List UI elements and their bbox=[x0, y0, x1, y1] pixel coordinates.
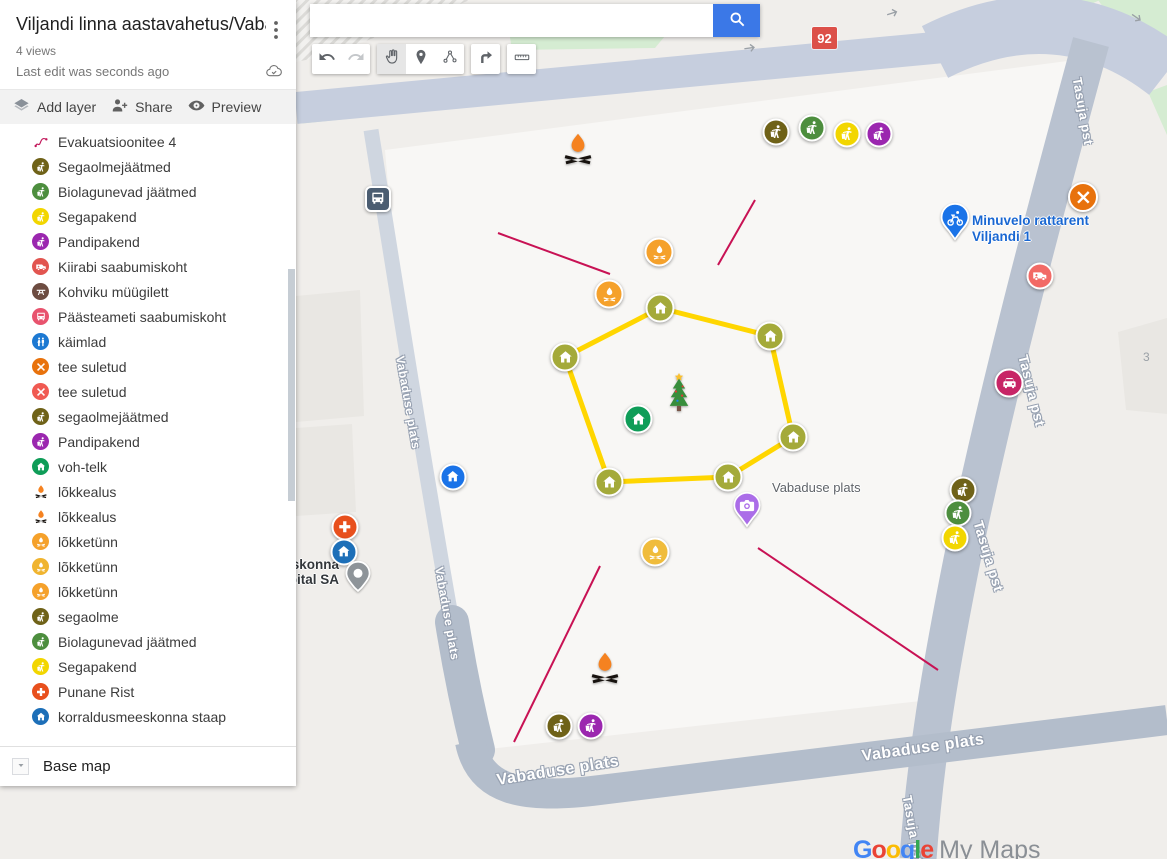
litter-icon bbox=[580, 715, 603, 738]
waste-mixed-marker-1[interactable] bbox=[763, 119, 790, 146]
litter-icon bbox=[32, 208, 49, 225]
waste-packaging-marker-2[interactable] bbox=[942, 525, 969, 552]
layer-item-20[interactable]: Biolagunevad jäätmed bbox=[0, 629, 296, 654]
layer-item-19[interactable]: segaolme bbox=[0, 604, 296, 629]
directions-icon bbox=[477, 48, 495, 71]
evacuation-route-line-3[interactable] bbox=[758, 548, 938, 670]
pan-tool-button[interactable] bbox=[377, 44, 406, 74]
measure-tool-button[interactable] bbox=[507, 44, 536, 74]
search-bar bbox=[310, 4, 760, 37]
chevron-down-icon bbox=[15, 758, 27, 776]
layer-item-label: lõkketünn bbox=[58, 559, 118, 575]
litter-icon bbox=[801, 117, 824, 140]
undo-icon bbox=[318, 48, 336, 71]
layer-item-label: lõkketünn bbox=[58, 584, 118, 600]
google-my-maps-logo: Google My Maps bbox=[853, 836, 1041, 859]
layer-item-label: tee suletud bbox=[58, 384, 127, 400]
litter-icon bbox=[952, 479, 975, 502]
toilets-marker[interactable] bbox=[440, 464, 467, 491]
bus-icon bbox=[367, 188, 389, 210]
layer-item-label: käimlad bbox=[58, 334, 106, 350]
add-directions-tool-button[interactable] bbox=[471, 44, 500, 74]
layer-item-23[interactable]: korraldusmeeskonna staap bbox=[0, 704, 296, 729]
layer-item-label: segaolmejäätmed bbox=[58, 409, 169, 425]
building-number: 3 bbox=[1143, 350, 1150, 364]
home-icon bbox=[32, 458, 49, 475]
picnic-icon bbox=[32, 283, 49, 300]
litter-icon bbox=[32, 658, 49, 675]
map-edit-toolbar bbox=[312, 44, 536, 74]
camera-pin-icon bbox=[731, 494, 763, 526]
litter-icon bbox=[32, 633, 49, 650]
search-button[interactable] bbox=[713, 4, 760, 37]
x-mark-icon bbox=[32, 383, 49, 400]
base-map-label[interactable]: Base map bbox=[43, 758, 111, 775]
layer-item-label: Segapakend bbox=[58, 209, 137, 225]
polygon-vertex-tent-3[interactable] bbox=[714, 463, 743, 492]
route-zigzag-icon bbox=[32, 133, 49, 150]
litter-icon bbox=[32, 183, 49, 200]
layer-item-label: segaolme bbox=[58, 609, 119, 625]
layer-item-6[interactable]: Kohviku müügilett bbox=[0, 279, 296, 304]
home-icon bbox=[716, 465, 741, 490]
layer-item-18[interactable]: lõkketünn bbox=[0, 579, 296, 604]
litter-icon bbox=[836, 123, 859, 146]
search-icon bbox=[727, 9, 747, 32]
redo-icon bbox=[347, 48, 365, 71]
litter-icon bbox=[32, 158, 49, 175]
draw-line-tool-button[interactable] bbox=[435, 44, 464, 74]
share-button[interactable]: Share bbox=[110, 96, 172, 118]
layer-item-label: Kohviku müügilett bbox=[58, 284, 169, 300]
poi-pin-icon bbox=[343, 563, 373, 593]
kebab-icon bbox=[274, 21, 278, 44]
home-icon bbox=[648, 296, 673, 321]
layer-item-label: korraldusmeeskonna staap bbox=[58, 709, 226, 725]
layers-panel: Viljandi linna aastavahetus/Vaba... 4 vi… bbox=[0, 0, 296, 786]
bonfire-marker-1[interactable] bbox=[559, 131, 597, 169]
layer-item-label: Punane Rist bbox=[58, 684, 134, 700]
waste-mixed-marker-2[interactable] bbox=[546, 713, 573, 740]
polygon-vertex-tent-2[interactable] bbox=[779, 423, 808, 452]
layer-item-label: Evakuatsioonitee 4 bbox=[58, 134, 176, 150]
firebarrel-marker-1[interactable] bbox=[645, 238, 674, 267]
car-icon bbox=[997, 371, 1022, 396]
layer-item-label: tee suletud bbox=[58, 359, 127, 375]
layer-item-11[interactable]: segaolmejäätmed bbox=[0, 404, 296, 429]
map-title[interactable]: Viljandi linna aastavahetus/Vaba... bbox=[16, 14, 266, 35]
tree-icon bbox=[661, 376, 697, 412]
cloud-sync-icon bbox=[264, 62, 284, 85]
litter-icon bbox=[944, 527, 967, 550]
preview-label: Preview bbox=[212, 99, 262, 115]
base-map-collapse-button[interactable] bbox=[12, 758, 29, 775]
campfire-icon bbox=[643, 540, 668, 565]
layer-item-label: Kiirabi saabumiskoht bbox=[58, 259, 187, 275]
my-maps-app: Vabaduse platsVabaduse platsVabaduse pla… bbox=[0, 0, 1167, 859]
polyline-icon bbox=[441, 48, 459, 71]
x-mark-icon bbox=[1070, 184, 1096, 210]
eye-icon bbox=[187, 96, 206, 118]
polygon-vertex-tent-5[interactable] bbox=[551, 343, 580, 372]
layer-item-5[interactable]: Kiirabi saabumiskoht bbox=[0, 254, 296, 279]
layer-item-10[interactable]: tee suletud bbox=[0, 379, 296, 404]
panel-scrollbar[interactable] bbox=[288, 269, 295, 501]
undo-button[interactable] bbox=[312, 44, 341, 74]
home-icon bbox=[626, 407, 651, 432]
plus-icon bbox=[334, 516, 357, 539]
layer-item-15[interactable]: lõkkealus bbox=[0, 504, 296, 529]
bus-icon bbox=[32, 308, 49, 325]
route-number-badge: 92 bbox=[812, 27, 837, 49]
rescue-car-marker[interactable] bbox=[995, 369, 1024, 398]
layer-item-1[interactable]: Segaolmejäätmed bbox=[0, 154, 296, 179]
panel-toolbar: Add layer Share Preview bbox=[0, 89, 296, 124]
campfire-icon bbox=[32, 583, 49, 600]
layer-item-3[interactable]: Segapakend bbox=[0, 204, 296, 229]
christmas-tree-marker[interactable] bbox=[661, 376, 697, 412]
layer-item-16[interactable]: lõkketünn bbox=[0, 529, 296, 554]
hospital-poi-pin[interactable] bbox=[343, 563, 373, 593]
bonfire-icon bbox=[586, 650, 624, 688]
layer-item-label: Biolagunevad jäätmed bbox=[58, 184, 197, 200]
layer-item-17[interactable]: lõkketünn bbox=[0, 554, 296, 579]
ambulance-marker[interactable] bbox=[1027, 263, 1054, 290]
bike-pin-icon bbox=[938, 205, 972, 239]
preview-button[interactable]: Preview bbox=[187, 96, 262, 118]
evacuation-route-line-0[interactable] bbox=[498, 233, 610, 274]
campfire-icon bbox=[597, 282, 622, 307]
home-icon bbox=[32, 708, 49, 725]
ambulance-icon bbox=[32, 258, 49, 275]
share-label: Share bbox=[135, 99, 172, 115]
bonfire-marker-2[interactable] bbox=[586, 650, 624, 688]
polygon-vertex-tent-1[interactable] bbox=[756, 322, 785, 351]
campfire-icon bbox=[32, 558, 49, 575]
hand-icon bbox=[383, 48, 401, 71]
ambulance-icon bbox=[1029, 265, 1052, 288]
waste-deposit-marker-2[interactable] bbox=[578, 713, 605, 740]
ruler-icon bbox=[513, 48, 531, 71]
polygon-vertex-tent-0[interactable] bbox=[646, 294, 675, 323]
layer-item-7[interactable]: Päästeameti saabumiskoht bbox=[0, 304, 296, 329]
plus-icon bbox=[32, 683, 49, 700]
layer-item-12[interactable]: Pandipakend bbox=[0, 429, 296, 454]
layer-item-label: Segapakend bbox=[58, 659, 137, 675]
search-input[interactable] bbox=[310, 4, 713, 37]
more-options-button[interactable] bbox=[266, 20, 286, 44]
base-map-row: Base map bbox=[0, 746, 296, 786]
campfire-icon bbox=[32, 533, 49, 550]
home-icon bbox=[442, 466, 465, 489]
panel-header: Viljandi linna aastavahetus/Vaba... 4 vi… bbox=[0, 0, 296, 89]
my-maps-label: My Maps bbox=[939, 836, 1040, 859]
layer-item-label: Päästeameti saabumiskoht bbox=[58, 309, 226, 325]
photo-pin[interactable] bbox=[731, 494, 763, 526]
evacuation-route-line-1[interactable] bbox=[718, 200, 755, 265]
layer-item-label: lõkketünn bbox=[58, 534, 118, 550]
layer-item-label: Pandipakend bbox=[58, 434, 140, 450]
litter-icon bbox=[947, 502, 970, 525]
home-icon bbox=[758, 324, 783, 349]
road-closed-marker[interactable] bbox=[1068, 182, 1098, 212]
litter-icon bbox=[765, 121, 788, 144]
layer-item-2[interactable]: Biolagunevad jäätmed bbox=[0, 179, 296, 204]
bus-stop-marker[interactable] bbox=[365, 186, 391, 212]
layer-item-label: Pandipakend bbox=[58, 234, 140, 250]
layer-item-21[interactable]: Segapakend bbox=[0, 654, 296, 679]
layer-item-label: lõkkealus bbox=[58, 484, 116, 500]
layer-item-8[interactable]: käimlad bbox=[0, 329, 296, 354]
litter-icon bbox=[32, 433, 49, 450]
layer-item-label: voh-telk bbox=[58, 459, 107, 475]
layer-item-label: lõkkealus bbox=[58, 509, 116, 525]
add-marker-tool-button[interactable] bbox=[406, 44, 435, 74]
home-icon bbox=[597, 470, 622, 495]
layers-icon bbox=[12, 96, 31, 118]
layer-item-9[interactable]: tee suletud bbox=[0, 354, 296, 379]
layer-item-0[interactable]: Evakuatsioonitee 4 bbox=[0, 129, 296, 154]
litter-icon bbox=[32, 233, 49, 250]
waste-deposit-marker-1[interactable] bbox=[866, 121, 893, 148]
bike-rental-pin[interactable] bbox=[938, 205, 972, 239]
litter-icon bbox=[32, 408, 49, 425]
litter-icon bbox=[32, 608, 49, 625]
campfire-icon bbox=[647, 240, 672, 265]
litter-icon bbox=[548, 715, 571, 738]
restroom-icon bbox=[32, 333, 49, 350]
google-logo: Google bbox=[853, 836, 933, 859]
firebarrel-marker-3[interactable] bbox=[641, 538, 670, 567]
firebarrel-marker-2[interactable] bbox=[595, 280, 624, 309]
bonfire-icon bbox=[32, 508, 49, 525]
bonfire-icon bbox=[32, 483, 49, 500]
home-icon bbox=[781, 425, 806, 450]
layer-item-13[interactable]: voh-telk bbox=[0, 454, 296, 479]
pin-icon bbox=[412, 48, 430, 71]
layer-item-14[interactable]: lõkkealus bbox=[0, 479, 296, 504]
red-cross-marker[interactable] bbox=[332, 514, 359, 541]
layer-item-list: Evakuatsioonitee 4SegaolmejäätmedBiolagu… bbox=[0, 124, 296, 746]
waste-packaging-marker-1[interactable] bbox=[834, 121, 861, 148]
add-layer-label: Add layer bbox=[37, 99, 96, 115]
litter-icon bbox=[868, 123, 891, 146]
waste-bio-marker-2[interactable] bbox=[945, 500, 972, 527]
bonfire-icon bbox=[559, 131, 597, 169]
layer-item-4[interactable]: Pandipakend bbox=[0, 229, 296, 254]
home-icon bbox=[553, 345, 578, 370]
polygon-vertex-tent-4[interactable] bbox=[595, 468, 624, 497]
layer-item-label: Segaolmejäätmed bbox=[58, 159, 171, 175]
waste-bio-marker-1[interactable] bbox=[799, 115, 826, 142]
redo-button[interactable] bbox=[341, 44, 370, 74]
views-count: 4 views bbox=[16, 44, 280, 58]
layer-item-22[interactable]: Punane Rist bbox=[0, 679, 296, 704]
layer-item-label: Biolagunevad jäätmed bbox=[58, 634, 197, 650]
x-mark-icon bbox=[32, 358, 49, 375]
add-layer-button[interactable]: Add layer bbox=[12, 96, 96, 118]
last-edit-status[interactable]: Last edit was seconds ago bbox=[16, 64, 280, 79]
voh-telk-marker[interactable] bbox=[624, 405, 653, 434]
person-add-icon bbox=[110, 96, 129, 118]
